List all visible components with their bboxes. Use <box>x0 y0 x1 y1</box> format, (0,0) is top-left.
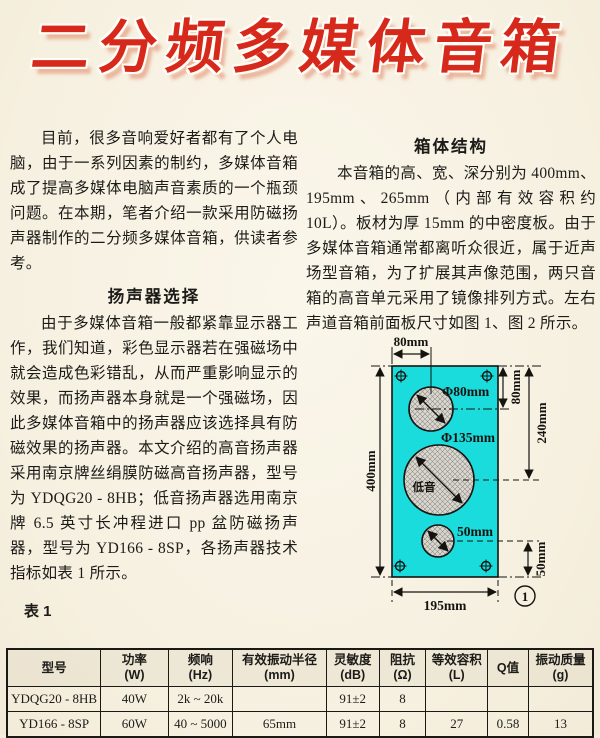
column-header-model: 型号 <box>7 649 101 687</box>
front-panel-diagram: 80mm 400mm 195mm Φ80mm Φ135mm 低音 50mm 80… <box>335 334 600 634</box>
cell-vibration-mass: 13 <box>528 712 593 738</box>
cell-impedance: 8 <box>379 712 426 738</box>
left-column: 目前，很多音响爱好者都有了个人电脑，由于一系列因素的制约，多媒体音箱成了提高多媒… <box>10 126 298 621</box>
cabinet-structure-paragraph: 本音箱的高、宽、深分别为 400mm、195mm、265mm（内部有效容积约 1… <box>306 161 596 336</box>
section-heading-speaker-selection: 扬声器选择 <box>10 283 298 307</box>
table-1-label: 表 1 <box>24 600 298 621</box>
cell-model: YD166 - 8SP <box>7 712 101 738</box>
section-heading-cabinet-structure: 箱体结构 <box>306 133 596 157</box>
figure-number-badge: 1 <box>515 586 535 606</box>
cell-equivalent-volume: 27 <box>426 712 488 738</box>
dim-panel-height-label: 400mm <box>363 450 378 491</box>
cell-model: YDQG20 - 8HB <box>7 687 101 712</box>
cell-power: 40W <box>101 687 168 712</box>
figure-number-text: 1 <box>522 589 529 604</box>
cell-q-value <box>487 687 528 712</box>
cell-vibration-mass <box>528 687 593 712</box>
dim-right-bottom-label: 50mm <box>533 542 548 577</box>
dim-right-top-label: 80mm <box>508 370 523 405</box>
column-header-vibration-radius: 有效振动半径 (mm) <box>233 649 327 687</box>
spec-table: 型号 功率 (W) 频响 (Hz) 有效振动半径 (mm) 灵敏度 (dB) 阻… <box>6 648 594 738</box>
cell-impedance: 8 <box>379 687 426 712</box>
cell-sensitivity: 91±2 <box>326 687 379 712</box>
cell-frequency: 2k ~ 20k <box>168 687 232 712</box>
cell-equivalent-volume <box>426 687 488 712</box>
column-header-equivalent-volume: 等效容积 (L) <box>426 649 488 687</box>
woofer-diameter-label: Φ135mm <box>441 430 496 445</box>
port-diameter-label: 50mm <box>457 524 494 539</box>
dim-top-width-label: 80mm <box>394 334 429 349</box>
cell-sensitivity: 91±2 <box>326 712 379 738</box>
right-column: 箱体结构 本音箱的高、宽、深分别为 400mm、195mm、265mm（内部有效… <box>306 126 596 336</box>
table-row-woofer: YD166 - 8SP 60W 40 ~ 5000 65mm 91±2 8 27… <box>7 712 593 738</box>
cell-frequency: 40 ~ 5000 <box>168 712 232 738</box>
cell-q-value: 0.58 <box>487 712 528 738</box>
tweeter-diameter-label: Φ80mm <box>442 384 490 399</box>
intro-paragraph: 目前，很多音响爱好者都有了个人电脑，由于一系列因素的制约，多媒体音箱成了提高多媒… <box>10 126 298 276</box>
header-row: 型号 功率 (W) 频响 (Hz) 有效振动半径 (mm) 灵敏度 (dB) 阻… <box>7 649 593 687</box>
column-header-power: 功率 (W) <box>101 649 168 687</box>
spec-table-header: 型号 功率 (W) 频响 (Hz) 有效振动半径 (mm) 灵敏度 (dB) 阻… <box>7 649 593 687</box>
cell-vibration-radius: 65mm <box>233 712 327 738</box>
column-header-sensitivity: 灵敏度 (dB) <box>326 649 379 687</box>
column-header-vibration-mass: 振动质量 (g) <box>528 649 593 687</box>
speaker-selection-paragraph: 由于多媒体音箱一般都紧靠显示器工作，我们知道，彩色显示器若在强磁场中就会造成色彩… <box>10 311 298 586</box>
page-title: 二分频多媒体音箱 <box>0 2 600 100</box>
dim-right-middle-label: 240mm <box>534 402 549 443</box>
magazine-page: { "page_title": "二分频多媒体音箱", "article": {… <box>0 0 600 735</box>
column-header-frequency: 频响 (Hz) <box>168 649 232 687</box>
column-header-q-value: Q值 <box>487 649 528 687</box>
column-header-impedance: 阻抗 (Ω) <box>379 649 426 687</box>
cell-vibration-radius <box>233 687 327 712</box>
page-title-text: 二分频多媒体音箱 <box>26 2 573 94</box>
cell-power: 60W <box>101 712 168 738</box>
dim-panel-width-label: 195mm <box>424 598 467 613</box>
woofer-text-label: 低音 <box>412 480 436 494</box>
table-row-tweeter: YDQG20 - 8HB 40W 2k ~ 20k 91±2 8 <box>7 687 593 712</box>
